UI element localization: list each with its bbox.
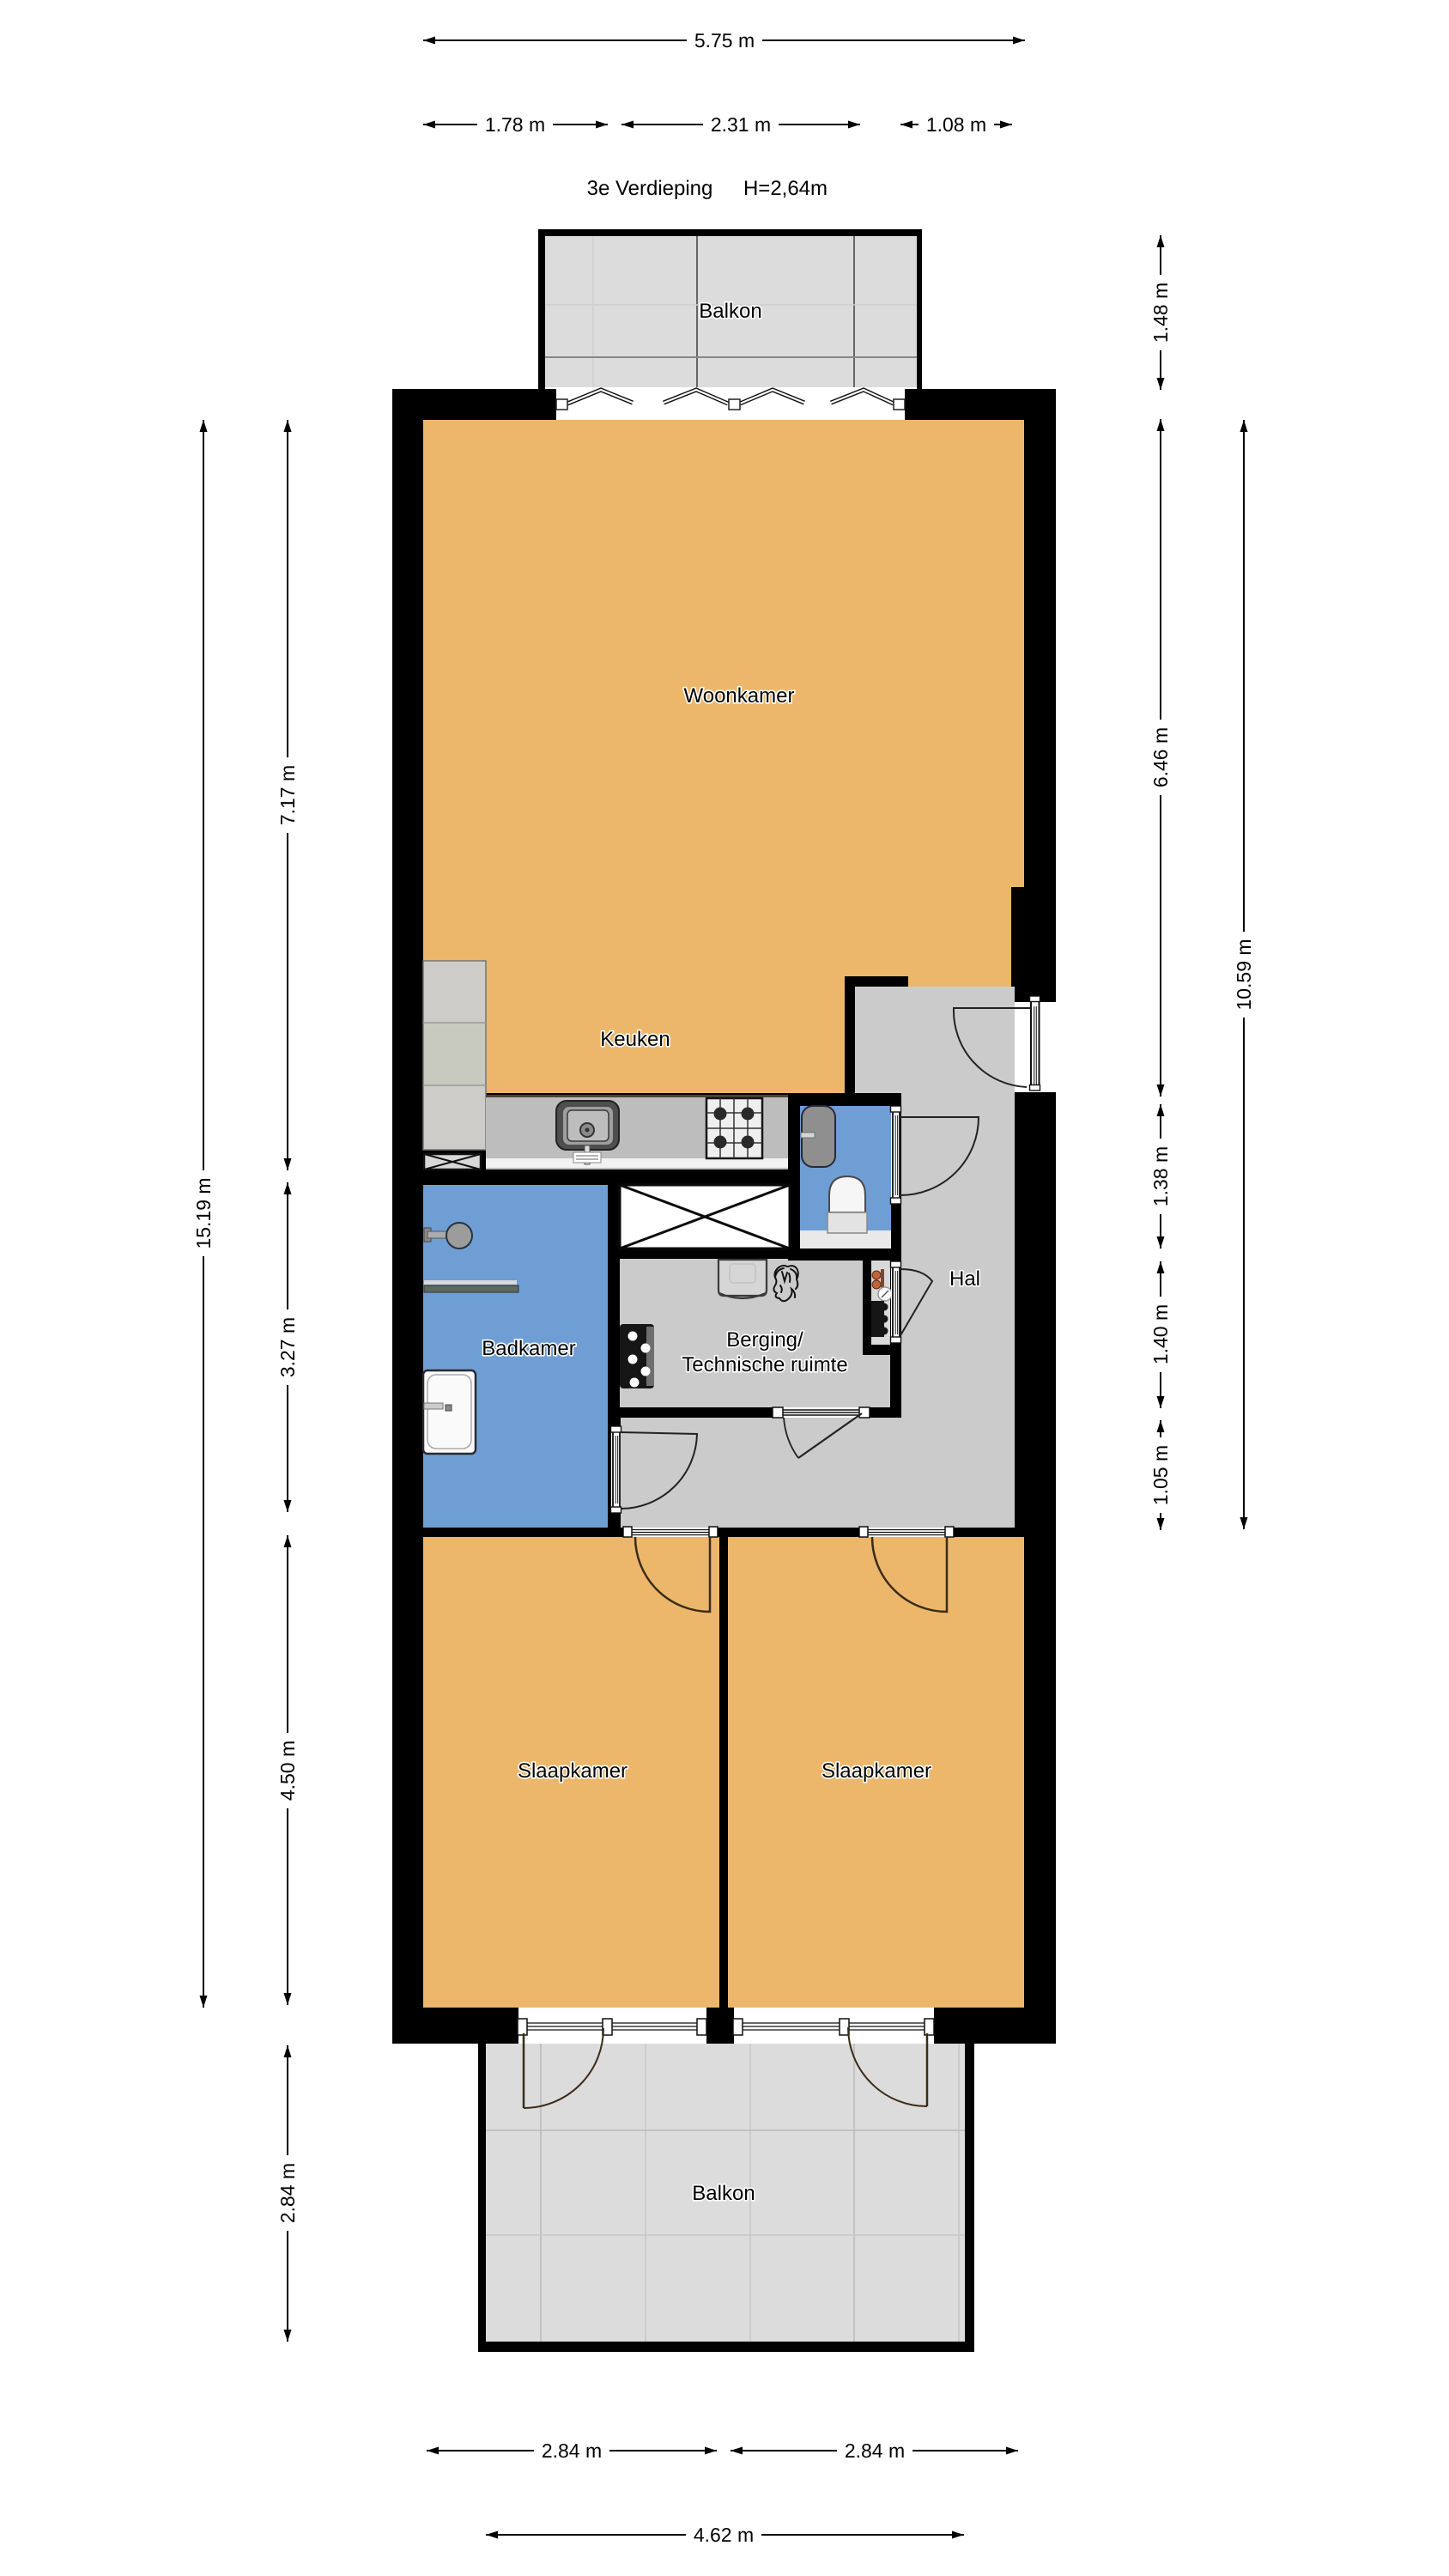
svg-text:15.19 m: 15.19 m	[192, 1177, 215, 1249]
svg-text:1.78 m: 1.78 m	[485, 113, 545, 136]
svg-text:Woonkamer: Woonkamer	[684, 684, 795, 708]
svg-text:Balkon: Balkon	[692, 2182, 755, 2205]
svg-text:Slaapkamer: Slaapkamer	[518, 1759, 627, 1783]
svg-text:Slaapkamer: Slaapkamer	[822, 1759, 931, 1783]
svg-text:1.40 m: 1.40 m	[1149, 1304, 1172, 1364]
svg-text:2.84 m: 2.84 m	[276, 2163, 299, 2223]
svg-text:1.08 m: 1.08 m	[926, 113, 986, 136]
svg-text:Technische ruimte: Technische ruimte	[682, 1353, 847, 1376]
svg-text:3.27 m: 3.27 m	[276, 1317, 299, 1377]
svg-text:1.05 m: 1.05 m	[1149, 1445, 1172, 1505]
svg-text:7.17 m: 7.17 m	[276, 765, 299, 825]
svg-text:2.31 m: 2.31 m	[711, 113, 771, 136]
svg-text:Hal: Hal	[949, 1267, 980, 1291]
svg-text:1.48 m: 1.48 m	[1149, 283, 1172, 343]
svg-text:1.38 m: 1.38 m	[1149, 1146, 1172, 1206]
svg-text:2.84 m: 2.84 m	[845, 2439, 905, 2462]
svg-text:Badkamer: Badkamer	[482, 1337, 575, 1360]
svg-text:10.59 m: 10.59 m	[1233, 939, 1255, 1010]
svg-text:Berging/: Berging/	[726, 1328, 803, 1352]
svg-text:2.84 m: 2.84 m	[542, 2439, 602, 2462]
svg-text:5.75 m: 5.75 m	[694, 29, 755, 52]
svg-text:6.46 m: 6.46 m	[1149, 727, 1172, 787]
svg-text:Balkon: Balkon	[699, 300, 761, 323]
svg-text:3e Verdieping: 3e Verdieping	[587, 177, 713, 200]
svg-text:4.62 m: 4.62 m	[694, 2524, 754, 2546]
svg-text:H=2,64m: H=2,64m	[743, 177, 828, 200]
svg-text:4.50 m: 4.50 m	[276, 1741, 299, 1801]
svg-text:Keuken: Keuken	[600, 1028, 670, 1051]
